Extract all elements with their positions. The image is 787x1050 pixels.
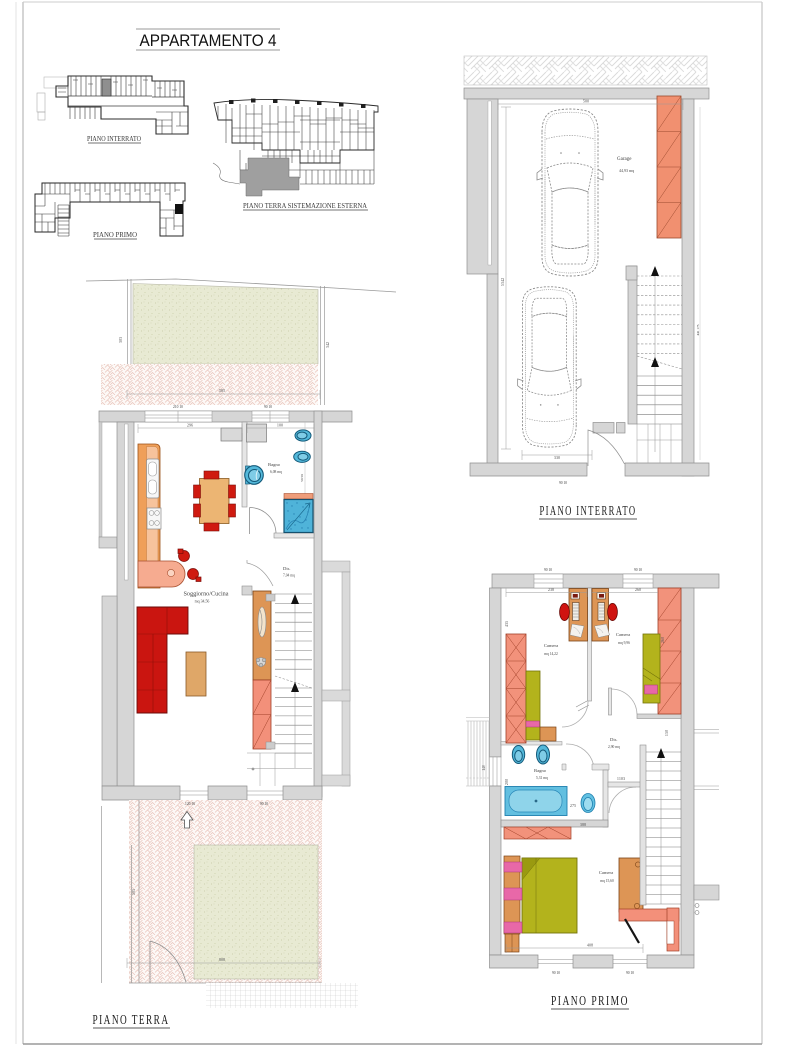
svg-text:100: 100 (277, 423, 283, 428)
svg-text:500: 500 (583, 99, 589, 104)
svg-text:260: 260 (635, 587, 641, 592)
svg-text:238: 238 (548, 587, 554, 592)
svg-text:90 10: 90 10 (260, 802, 268, 806)
svg-text:Dis.: Dis. (283, 566, 291, 571)
svg-text:90 10: 90 10 (264, 405, 272, 409)
svg-text:296: 296 (187, 423, 193, 428)
svg-text:585: 585 (219, 388, 225, 393)
svg-text:PIANO INTERRATO: PIANO INTERRATO (87, 135, 141, 143)
svg-text:388: 388 (580, 822, 586, 827)
svg-text:90 10: 90 10 (544, 568, 552, 572)
svg-text:Camera: Camera (599, 870, 613, 875)
svg-text:90 10: 90 10 (559, 481, 567, 485)
svg-text:90 10: 90 10 (552, 971, 560, 975)
svg-text:275: 275 (570, 803, 576, 808)
svg-text:808: 808 (219, 957, 225, 962)
svg-text:5342: 5342 (500, 278, 505, 286)
svg-text:330: 330 (554, 455, 560, 460)
svg-text:APPARTAMENTO 4: APPARTAMENTO 4 (140, 32, 277, 50)
svg-text:140: 140 (482, 765, 486, 771)
svg-text:Garage: Garage (617, 157, 632, 162)
svg-text:342: 342 (325, 342, 330, 348)
svg-text:150: 150 (664, 730, 669, 736)
svg-text:PIANO INTERRATO: PIANO INTERRATO (540, 504, 637, 519)
svg-text:260: 260 (660, 637, 665, 643)
svg-text:200: 200 (504, 779, 509, 785)
svg-text:Bagno: Bagno (534, 768, 547, 773)
svg-text:PIANO PRIMO: PIANO PRIMO (93, 231, 137, 239)
svg-text:Camera: Camera (616, 632, 630, 637)
svg-text:303: 303 (118, 337, 123, 343)
svg-text:435: 435 (504, 621, 509, 627)
svg-text:Bagno: Bagno (268, 462, 281, 467)
svg-text:90 10: 90 10 (634, 568, 642, 572)
svg-text:PIANO TERRA SISTEMAZIONE EST: PIANO TERRA SISTEMAZIONE ESTERNA (243, 202, 367, 210)
svg-text:505: 505 (131, 889, 136, 895)
svg-text:210 10: 210 10 (173, 405, 183, 409)
svg-text:90 10: 90 10 (626, 971, 634, 975)
svg-text:50 50: 50 50 (300, 474, 304, 482)
svg-text:1103: 1103 (617, 776, 625, 781)
svg-text:PIANO TERRA: PIANO TERRA (93, 1013, 170, 1028)
svg-text:120 10: 120 10 (185, 802, 195, 806)
svg-text:Dis.: Dis. (610, 737, 618, 742)
svg-text:408: 408 (587, 943, 593, 948)
svg-text:Soggiorno/Cucina: Soggiorno/Cucina (183, 591, 228, 598)
svg-text:Camera: Camera (544, 643, 558, 648)
svg-text:441 175: 441 175 (696, 324, 700, 335)
svg-text:PIANO PRIMO: PIANO PRIMO (551, 994, 629, 1009)
